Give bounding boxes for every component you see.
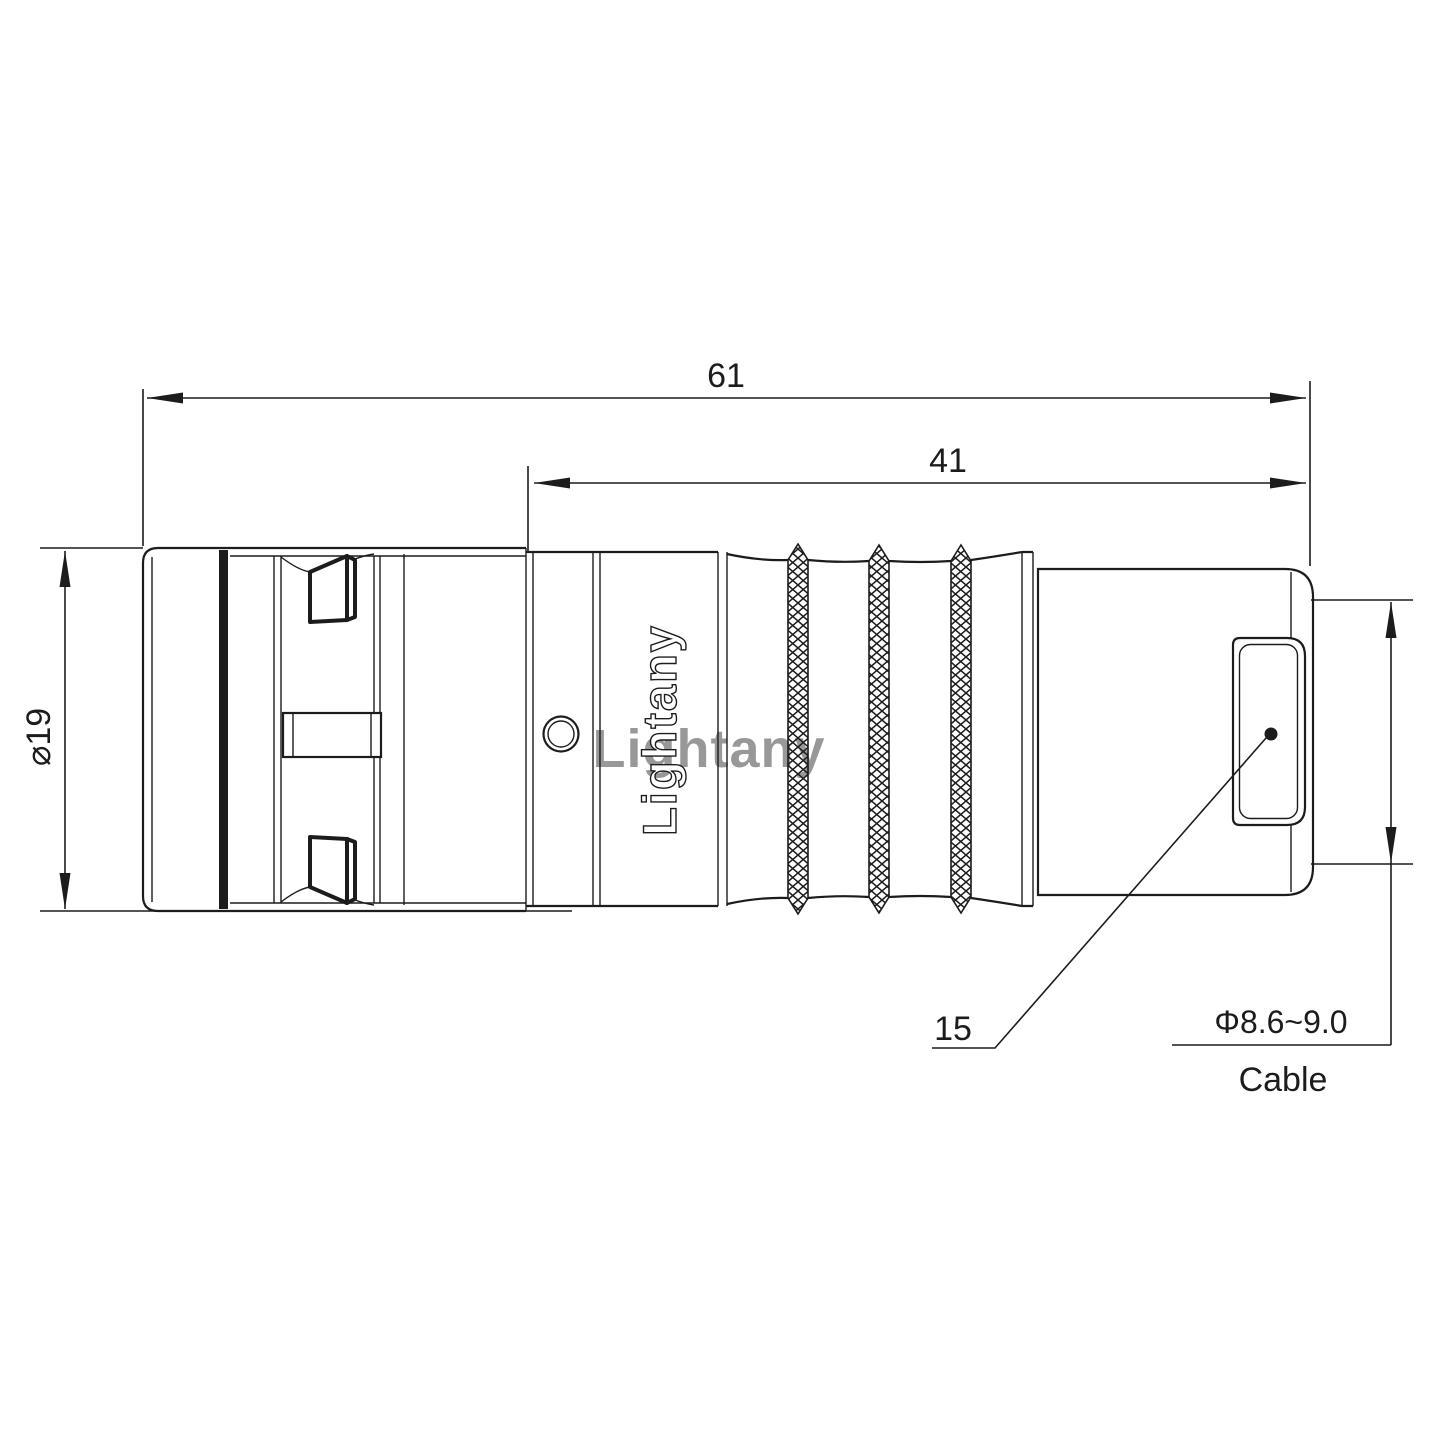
connector-drawing: Lightany [0, 0, 1440, 1440]
dim-61-label: 61 [707, 357, 745, 395]
vent-hole-outer [544, 717, 579, 752]
dim-body-length: 41 [528, 442, 1306, 551]
latch-window [283, 713, 381, 757]
dim-61-extension-lines [143, 381, 1310, 566]
knurl-band-1 [788, 544, 808, 914]
engraved-logo: Lightany [633, 624, 686, 836]
latch-top-side [347, 556, 355, 620]
dim-41-arrow-right [1270, 478, 1306, 489]
end-cap-edges [1022, 552, 1033, 906]
dim-cable-arrow-top [1386, 602, 1397, 638]
dim-41-arrow-left [534, 478, 570, 489]
dim-cable-label: Φ8.6~9.0 [1214, 1004, 1347, 1040]
dim-61-arrow-right [1270, 393, 1306, 404]
dim-cable-extension-lines [1311, 600, 1413, 864]
dim-61-arrow-left [147, 393, 183, 404]
dim-19-arrow-top [60, 551, 71, 587]
callout-15-label: 15 [934, 1010, 972, 1048]
black-marking-band [219, 550, 228, 909]
cable-word-label: Cable [1239, 1061, 1328, 1099]
dim-19-label: ⌀19 [20, 708, 58, 766]
knurl-band-3 [951, 545, 971, 913]
engraved-logo-text: Lightany [633, 624, 686, 836]
latch-window-rect [283, 713, 381, 757]
end-cap-lines [1022, 552, 1033, 906]
latch-bottom-side [347, 839, 355, 903]
knurl-band-2 [869, 545, 889, 913]
dim-19-arrow-bottom [60, 873, 71, 909]
dim-cable-arrow-bottom [1386, 827, 1397, 863]
dim-41-label: 41 [929, 442, 967, 480]
dim-total-length: 61 [143, 357, 1310, 566]
technical-drawing-canvas: Lightany [0, 0, 1440, 1440]
